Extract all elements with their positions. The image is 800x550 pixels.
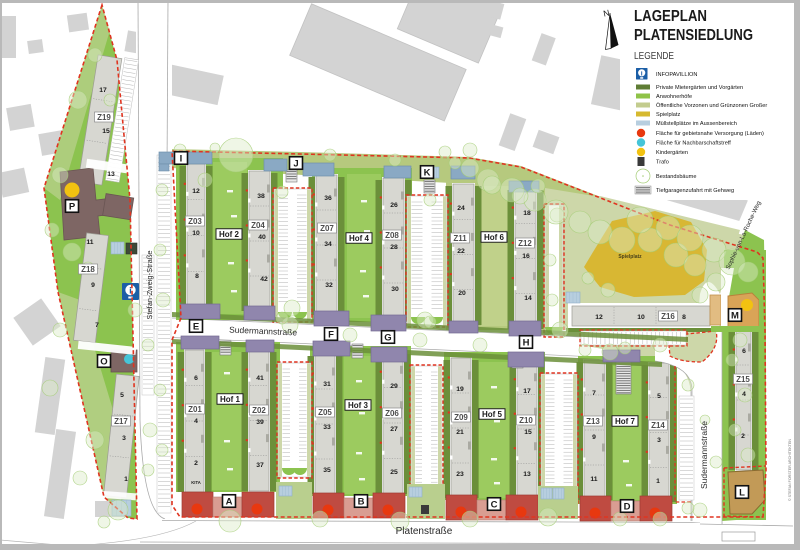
svg-text:Z01: Z01: [188, 405, 202, 414]
svg-text:KITA: KITA: [191, 480, 200, 485]
svg-text:K: K: [424, 167, 431, 178]
svg-text:42: 42: [260, 276, 268, 283]
svg-text:3: 3: [657, 437, 661, 444]
svg-text:P: P: [69, 201, 76, 212]
svg-text:Z12: Z12: [518, 239, 532, 248]
svg-text:18: 18: [523, 210, 531, 217]
svg-text:Z19: Z19: [97, 113, 111, 122]
svg-text:Fläche für gebietsnahe Versorg: Fläche für gebietsnahe Versorgung (Läden…: [656, 131, 764, 137]
svg-text:33: 33: [323, 424, 331, 431]
svg-text:13: 13: [523, 471, 531, 478]
svg-text:Z11: Z11: [453, 234, 467, 243]
svg-text:L: L: [739, 487, 745, 498]
svg-text:15: 15: [524, 429, 532, 436]
svg-text:Hof 5: Hof 5: [482, 410, 503, 419]
svg-text:21: 21: [456, 429, 464, 436]
svg-text:Spielplatz: Spielplatz: [618, 254, 642, 260]
svg-text:6: 6: [194, 375, 198, 382]
svg-text:31: 31: [323, 381, 331, 388]
svg-text:Hof 7: Hof 7: [615, 417, 636, 426]
svg-text:Z14: Z14: [651, 421, 665, 430]
svg-text:LAGEPLAN: LAGEPLAN: [634, 8, 707, 25]
svg-text:34: 34: [324, 241, 332, 248]
svg-text:Z05: Z05: [318, 408, 332, 417]
svg-text:G: G: [384, 332, 391, 343]
svg-text:10: 10: [637, 314, 645, 321]
svg-text:2: 2: [194, 460, 198, 467]
svg-text:Trafo: Trafo: [656, 160, 669, 166]
svg-text:Z04: Z04: [251, 221, 265, 230]
svg-text:19: 19: [456, 386, 464, 393]
svg-text:B: B: [358, 496, 365, 507]
svg-text:7: 7: [592, 390, 596, 397]
svg-text:Z17: Z17: [114, 417, 128, 426]
svg-text:D: D: [624, 501, 631, 512]
svg-text:9: 9: [592, 434, 596, 441]
svg-text:Hof 3: Hof 3: [348, 401, 369, 410]
svg-text:Anwohnerhöfe: Anwohnerhöfe: [656, 94, 692, 100]
svg-text:Öffentliche Vorzonen und Grünz: Öffentliche Vorzonen und Grünzonen Große…: [656, 102, 767, 109]
svg-text:C: C: [491, 499, 498, 510]
svg-text:Tiefgaragenzufahrt mit Gehweg: Tiefgaragenzufahrt mit Gehweg: [656, 188, 734, 194]
svg-text:35: 35: [323, 467, 331, 474]
svg-text:Hof 1: Hof 1: [220, 395, 241, 404]
svg-text:5: 5: [120, 392, 124, 399]
svg-text:Platenstraße: Platenstraße: [396, 526, 453, 537]
svg-text:E: E: [193, 321, 199, 332]
svg-text:38: 38: [257, 193, 265, 200]
svg-text:13: 13: [107, 171, 115, 178]
svg-text:32: 32: [325, 282, 333, 289]
svg-text:37: 37: [256, 462, 264, 469]
svg-text:14: 14: [524, 295, 532, 302]
svg-text:17: 17: [523, 388, 531, 395]
svg-text:15: 15: [102, 128, 110, 135]
svg-text:10: 10: [192, 230, 200, 237]
svg-text:Sudermannstraße: Sudermannstraße: [699, 421, 709, 489]
svg-text:12: 12: [595, 314, 603, 321]
svg-text:Müllstellplätze im Aussenberei: Müllstellplätze im Aussenbereich: [656, 121, 737, 127]
svg-text:Z16: Z16: [661, 312, 675, 321]
svg-text:22: 22: [457, 248, 465, 255]
svg-text:39: 39: [256, 419, 264, 426]
svg-text:4: 4: [742, 391, 746, 398]
svg-text:3: 3: [122, 435, 126, 442]
svg-text:PLATENSIEDLUNG: PLATENSIEDLUNG: [634, 27, 753, 44]
svg-text:Z08: Z08: [385, 231, 399, 240]
svg-text:8: 8: [682, 314, 686, 321]
svg-text:I: I: [180, 153, 183, 164]
svg-text:23: 23: [456, 471, 464, 478]
svg-text:16: 16: [522, 253, 530, 260]
svg-text:11: 11: [590, 476, 597, 483]
svg-text:17: 17: [99, 87, 107, 94]
svg-text:Stefan-Zweig-Straße: Stefan-Zweig-Straße: [145, 250, 154, 319]
svg-text:26: 26: [390, 202, 398, 209]
svg-text:INFOPAVILLION: INFOPAVILLION: [656, 72, 697, 78]
svg-text:1: 1: [124, 476, 128, 483]
svg-text:Z15: Z15: [736, 375, 750, 384]
svg-text:Fläche für Nachbarschaftstreff: Fläche für Nachbarschaftstreff: [656, 141, 731, 147]
svg-text:20: 20: [458, 290, 466, 297]
svg-text:9: 9: [91, 282, 95, 289]
svg-text:41: 41: [256, 375, 264, 382]
svg-text:Spielplatz: Spielplatz: [656, 112, 680, 118]
svg-text:5: 5: [657, 393, 661, 400]
svg-text:11: 11: [86, 239, 93, 246]
svg-text:8: 8: [195, 273, 199, 280]
svg-text:Z03: Z03: [188, 217, 202, 226]
svg-text:2: 2: [741, 433, 745, 440]
svg-text:Z10: Z10: [519, 416, 533, 425]
svg-text:36: 36: [324, 195, 332, 202]
svg-text:Hof 6: Hof 6: [484, 233, 505, 242]
svg-text:F: F: [328, 329, 334, 340]
svg-text:7: 7: [95, 322, 99, 329]
svg-text:27: 27: [390, 426, 398, 433]
svg-text:Z06: Z06: [385, 409, 399, 418]
svg-text:M: M: [731, 310, 739, 321]
svg-text:25: 25: [390, 469, 398, 476]
svg-text:28: 28: [390, 244, 398, 251]
svg-text:Bestandsbäume: Bestandsbäume: [656, 174, 696, 180]
svg-text:Kindergärten: Kindergärten: [656, 150, 688, 156]
svg-text:12: 12: [192, 188, 200, 195]
svg-text:J: J: [293, 158, 298, 169]
svg-text:LEGENDE: LEGENDE: [634, 50, 674, 62]
svg-text:Z02: Z02: [252, 406, 266, 415]
svg-text:H: H: [523, 337, 530, 348]
svg-text:1: 1: [656, 478, 660, 485]
svg-text:O: O: [100, 356, 107, 367]
svg-text:Z18: Z18: [81, 265, 95, 274]
svg-text:24: 24: [457, 205, 465, 212]
svg-text:A: A: [226, 496, 233, 507]
svg-text:Z07: Z07: [320, 224, 334, 233]
svg-text:4: 4: [194, 418, 198, 425]
svg-text:© STEFAN FORSTER ARCHITEKTEN: © STEFAN FORSTER ARCHITEKTEN: [788, 439, 792, 501]
svg-text:Z09: Z09: [454, 413, 468, 422]
svg-text:i: i: [641, 70, 643, 77]
svg-text:Hof 4: Hof 4: [349, 234, 370, 243]
svg-text:6: 6: [742, 348, 746, 355]
svg-text:Z13: Z13: [586, 417, 600, 426]
svg-text:40: 40: [258, 234, 266, 241]
svg-text:29: 29: [390, 383, 398, 390]
svg-text:Private Mietergärten und Vorgä: Private Mietergärten und Vorgärten: [656, 85, 743, 91]
svg-text:Hof 2: Hof 2: [219, 230, 240, 239]
svg-text:30: 30: [391, 286, 399, 293]
